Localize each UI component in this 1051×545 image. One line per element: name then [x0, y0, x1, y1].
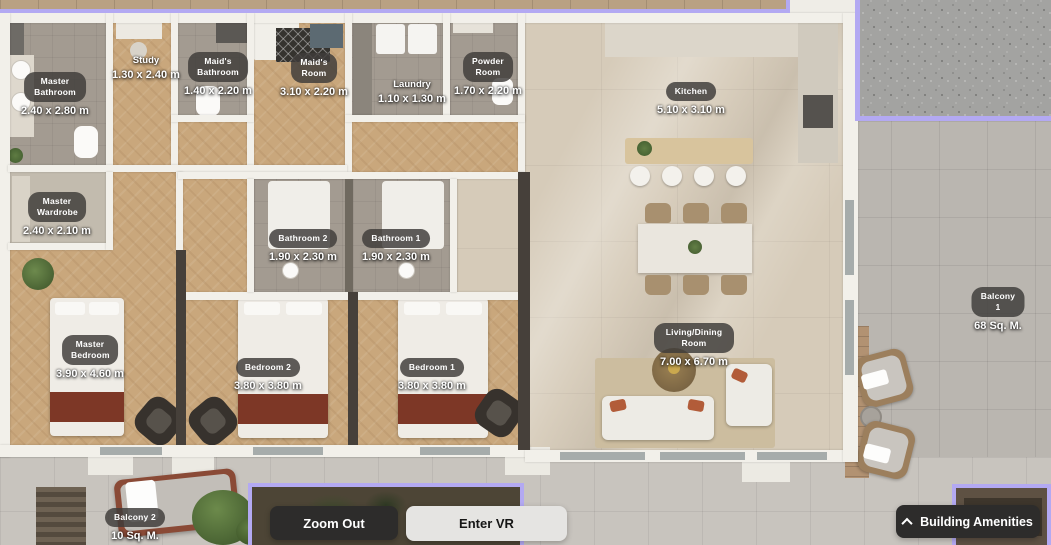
- sink: [282, 262, 299, 279]
- room-label-master-bedroom: Master Bedroom 3.90 x 4.60 m: [56, 335, 124, 380]
- sink: [398, 262, 415, 279]
- room-dims: 68 Sq. M.: [972, 320, 1025, 332]
- room-dims: 3.80 x 3.80 m: [234, 380, 302, 392]
- table-centerpiece-plant: [688, 240, 702, 254]
- room-name-pill: Master Wardrobe: [28, 192, 86, 222]
- room-label-balcony-1: Balcony 1 68 Sq. M.: [972, 287, 1025, 332]
- room-label-powder-room: Powder Room 1.70 x 2.20 m: [454, 52, 522, 97]
- maids-mat: [310, 24, 343, 48]
- room-label-balcony-2: Balcony 2 10 Sq. M.: [105, 507, 165, 542]
- dining-chair: [721, 203, 747, 223]
- bar-stool: [662, 166, 682, 186]
- room-dims: 1.90 x 2.30 m: [362, 251, 430, 263]
- bed-runner: [238, 394, 328, 424]
- room-label-maids-room: Maid's Room 3.10 x 2.20 m: [280, 53, 348, 98]
- unit-outline-top: [0, 9, 790, 13]
- room-dims: 5.10 x 3.10 m: [657, 104, 725, 116]
- unit-outline-step: [786, 0, 790, 13]
- zoom-out-button[interactable]: Zoom Out: [270, 506, 398, 540]
- bar-stool: [726, 166, 746, 186]
- bed-pillow: [286, 302, 322, 315]
- washing-machine: [376, 24, 405, 54]
- room-name: Study: [112, 55, 180, 66]
- room-dims: 1.10 x 1.30 m: [378, 93, 446, 105]
- room-dims: 1.90 x 2.30 m: [269, 251, 337, 263]
- island-plant: [637, 141, 652, 156]
- dryer-machine: [408, 24, 437, 54]
- neighbor-floor-strip: [0, 0, 790, 9]
- room-name-pill: Maid's Bathroom: [188, 52, 248, 82]
- building-amenities-button[interactable]: Building Amenities: [896, 505, 1040, 538]
- exterior-white-strip: [786, 0, 855, 13]
- room-label-bathroom-2: Bathroom 2 1.90 x 2.30 m: [269, 228, 337, 263]
- bed-pillow: [404, 302, 440, 315]
- room-label-bathroom-1: Bathroom 1 1.90 x 2.30 m: [362, 228, 430, 263]
- hall-plant: [22, 258, 54, 290]
- room-label-kitchen: Kitchen 5.10 x 3.10 m: [657, 81, 725, 116]
- bed-pillow: [244, 302, 280, 315]
- room-name-pill: Bedroom 2: [236, 358, 300, 377]
- room-name-pill: Master Bedroom: [62, 335, 118, 365]
- bar-stool: [694, 166, 714, 186]
- room-label-study: Study 1.30 x 2.40 m: [112, 55, 180, 81]
- room-name-pill: Kitchen: [666, 82, 717, 101]
- bed-pillow: [89, 302, 119, 315]
- dining-chair: [645, 203, 671, 223]
- adjacent-unit-gravel[interactable]: [855, 0, 1051, 121]
- room-label-laundry: Laundry 1.10 x 1.30 m: [378, 79, 446, 105]
- dining-chair: [721, 275, 747, 295]
- dining-chair: [645, 275, 671, 295]
- room-dims: 2.40 x 2.10 m: [23, 225, 91, 237]
- building-amenities-label: Building Amenities: [920, 515, 1033, 529]
- bed-pillow: [446, 302, 482, 315]
- room-dims: 7.00 x 6.70 m: [654, 356, 734, 368]
- room-name-pill: Living/Dining Room: [654, 323, 734, 353]
- dining-chair: [683, 203, 709, 223]
- room-name-pill: Bathroom 1: [362, 229, 429, 248]
- room-name-pill: Bedroom 1: [400, 358, 464, 377]
- room-name-pill: Master Bathroom: [24, 72, 86, 102]
- garden-steps: [36, 487, 86, 545]
- toilet: [74, 126, 98, 158]
- room-dims: 10 Sq. M.: [105, 530, 165, 542]
- room-name-pill: Bathroom 2: [269, 229, 336, 248]
- laundry-cabinet: [353, 14, 372, 120]
- stove: [803, 95, 833, 128]
- dining-chair: [683, 275, 709, 295]
- floorplan-viewport[interactable]: Master Bathroom 2.40 x 2.80 m Study 1.30…: [0, 0, 1051, 545]
- room-label-bedroom-1: Bedroom 1 3.80 x 3.80 m: [398, 357, 466, 392]
- room-dims: 1.70 x 2.20 m: [454, 85, 522, 97]
- room-name-pill: Balcony 2: [105, 508, 165, 527]
- room-name-pill: Maid's Room: [291, 53, 337, 83]
- room-label-master-wardrobe: Master Wardrobe 2.40 x 2.10 m: [23, 192, 91, 237]
- room-name: Laundry: [378, 79, 446, 90]
- enter-vr-button[interactable]: Enter VR: [406, 506, 567, 541]
- room-label-master-bathroom: Master Bathroom 2.40 x 2.80 m: [21, 72, 89, 117]
- room-name-pill: Balcony 1: [972, 287, 1025, 317]
- room-name-pill: Powder Room: [463, 52, 513, 82]
- entry-hall-floor: [457, 172, 518, 298]
- room-dims: 3.80 x 3.80 m: [398, 380, 466, 392]
- kitchen-counter-column: [798, 23, 838, 163]
- room-dims: 3.10 x 2.20 m: [280, 86, 348, 98]
- bed-runner: [50, 392, 124, 422]
- bed-pillow: [55, 302, 85, 315]
- room-dims: 1.40 x 2.20 m: [184, 85, 252, 97]
- room-label-maids-bathroom: Maid's Bathroom 1.40 x 2.20 m: [184, 52, 252, 97]
- room-dims: 2.40 x 2.80 m: [21, 105, 89, 117]
- chevron-up-icon: [901, 517, 912, 528]
- bath-plant: [8, 148, 23, 163]
- room-label-living-dining: Living/Dining Room 7.00 x 6.70 m: [654, 323, 734, 368]
- bar-stool: [630, 166, 650, 186]
- room-dims: 1.30 x 2.40 m: [112, 69, 180, 81]
- room-dims: 3.90 x 4.60 m: [56, 368, 124, 380]
- room-label-bedroom-2: Bedroom 2 3.80 x 3.80 m: [234, 357, 302, 392]
